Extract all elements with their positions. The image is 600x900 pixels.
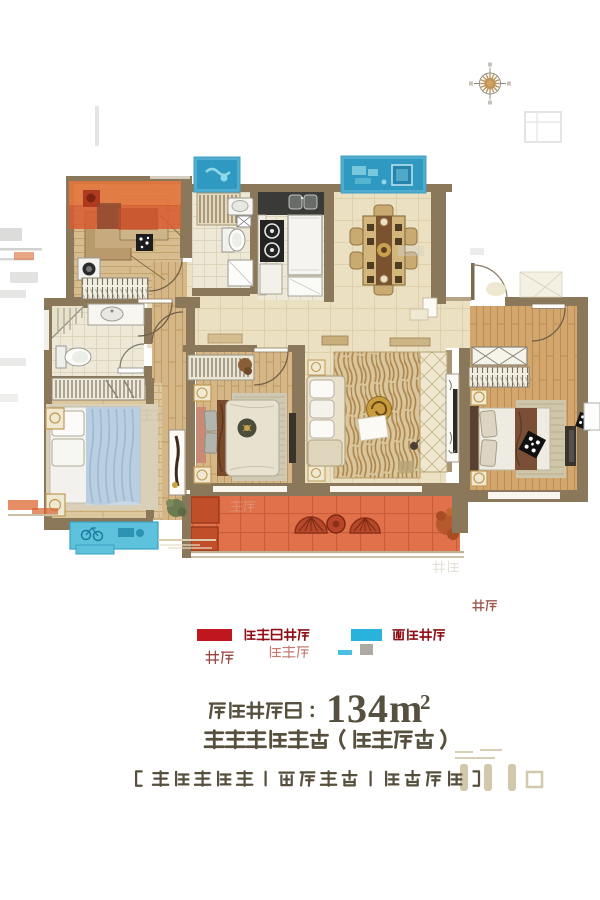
svg-text:2: 2	[420, 690, 431, 714]
svg-text:134m: 134m	[326, 686, 423, 731]
